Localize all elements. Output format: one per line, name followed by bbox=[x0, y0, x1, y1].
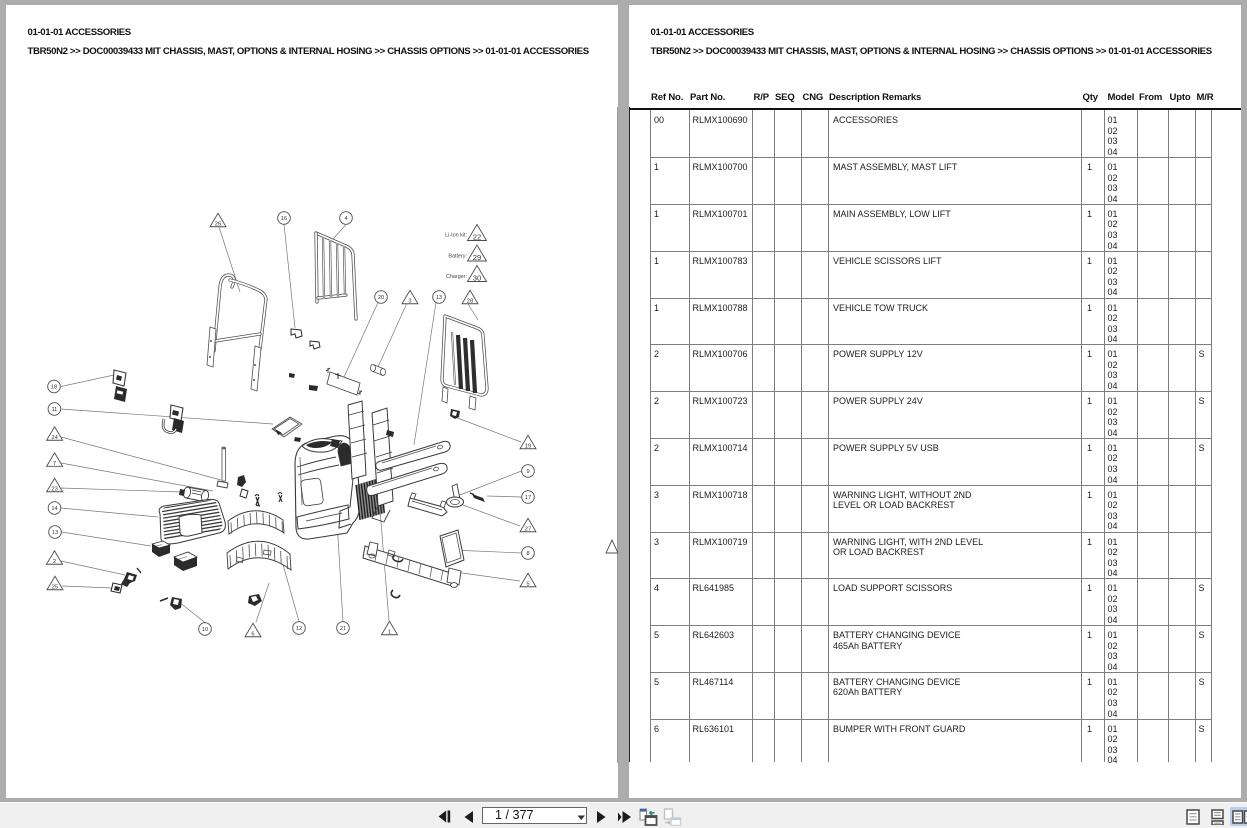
svg-text:13: 13 bbox=[52, 530, 58, 536]
svg-text:19: 19 bbox=[525, 444, 531, 450]
svg-text:7: 7 bbox=[53, 461, 56, 467]
svg-text:9: 9 bbox=[526, 469, 529, 475]
svg-text:21: 21 bbox=[340, 626, 346, 632]
svg-text:13: 13 bbox=[436, 295, 442, 301]
svg-text:26: 26 bbox=[215, 222, 221, 228]
svg-text:1: 1 bbox=[388, 630, 391, 636]
svg-text:27: 27 bbox=[525, 527, 531, 533]
svg-text:20: 20 bbox=[378, 295, 384, 301]
svg-text:29: 29 bbox=[473, 253, 481, 262]
svg-text:24: 24 bbox=[51, 435, 58, 441]
svg-text:Li-Ion kit:: Li-Ion kit: bbox=[445, 233, 467, 239]
svg-text:16: 16 bbox=[281, 216, 287, 222]
svg-text:12: 12 bbox=[296, 626, 302, 632]
svg-text:25: 25 bbox=[52, 585, 58, 591]
svg-text:17: 17 bbox=[525, 495, 531, 501]
svg-text:28: 28 bbox=[467, 299, 473, 305]
svg-text:30: 30 bbox=[473, 273, 481, 282]
svg-text:3: 3 bbox=[408, 299, 411, 305]
svg-text:2: 2 bbox=[53, 559, 56, 565]
svg-text:Battery:: Battery: bbox=[448, 253, 467, 259]
svg-text:8: 8 bbox=[526, 551, 529, 557]
svg-text:18: 18 bbox=[51, 385, 57, 391]
svg-text:4: 4 bbox=[344, 216, 347, 222]
svg-text:10: 10 bbox=[202, 627, 208, 633]
svg-text:6: 6 bbox=[251, 632, 254, 638]
svg-text:5: 5 bbox=[526, 582, 529, 588]
svg-text:22: 22 bbox=[473, 232, 481, 241]
svg-text:Charger:: Charger: bbox=[446, 274, 467, 280]
svg-text:14: 14 bbox=[51, 506, 57, 512]
svg-text:23: 23 bbox=[51, 487, 57, 493]
svg-text:11: 11 bbox=[51, 407, 57, 413]
